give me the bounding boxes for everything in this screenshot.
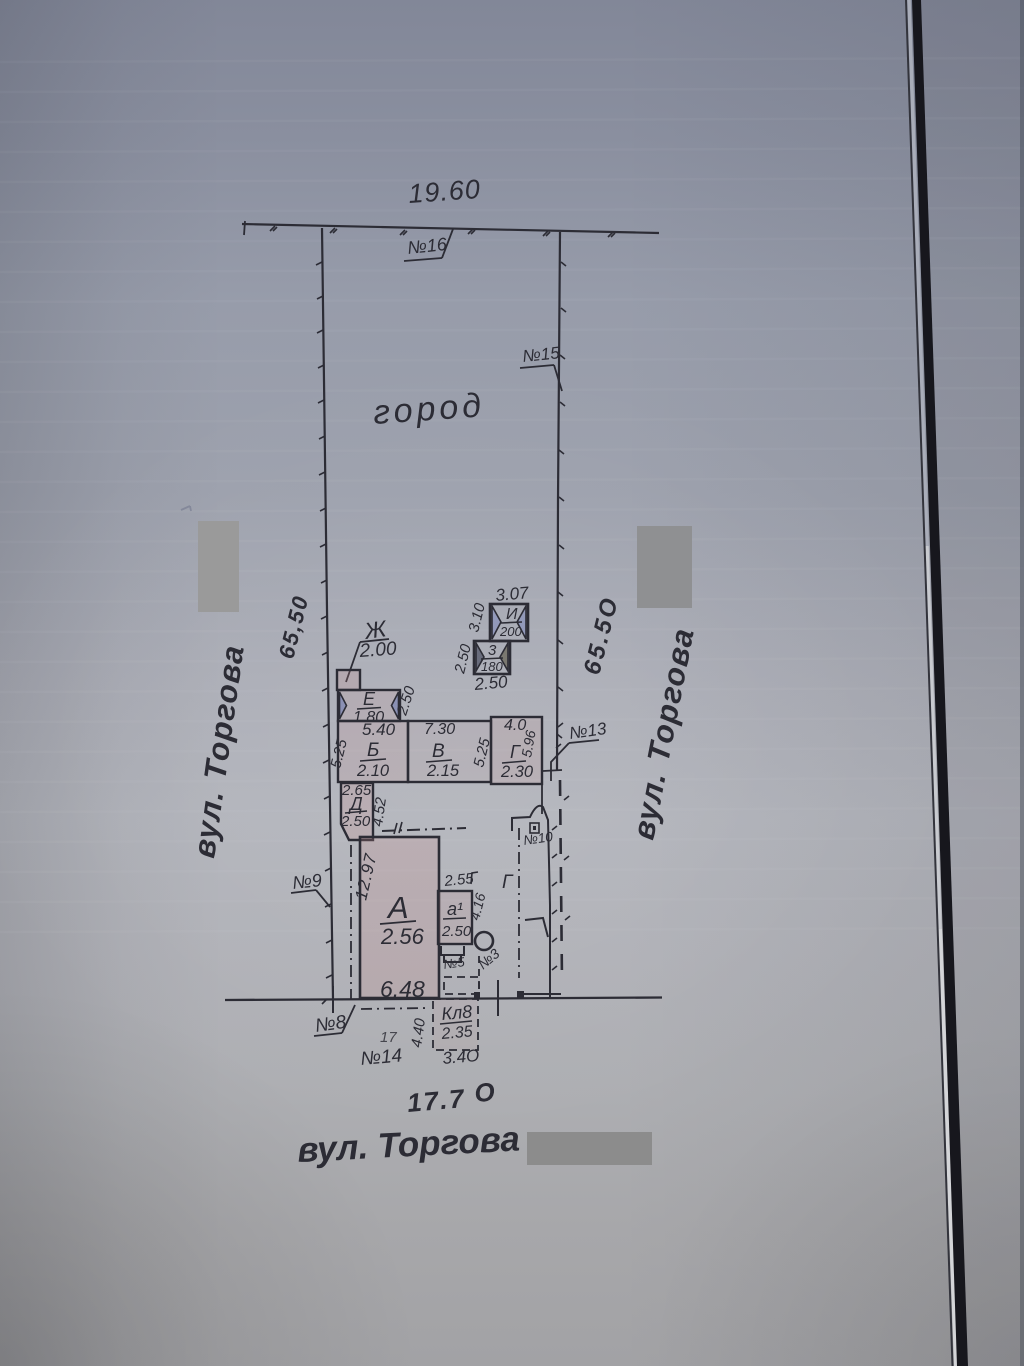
svg-text:2.10: 2.10 xyxy=(356,762,390,780)
svg-text:город: город xyxy=(372,386,486,432)
svg-text:№5: №5 xyxy=(442,954,466,972)
svg-text:2.55: 2.55 xyxy=(443,870,475,890)
svg-text:200: 200 xyxy=(499,624,522,639)
svg-text:2.56: 2.56 xyxy=(380,924,425,949)
svg-text:2.50: 2.50 xyxy=(393,684,419,719)
svg-text:7.30: 7.30 xyxy=(424,721,455,738)
svg-text:4.40: 4.40 xyxy=(408,1017,429,1049)
svg-text:№14: №14 xyxy=(360,1045,403,1070)
svg-text:Е: Е xyxy=(363,689,376,709)
svg-text:19.60: 19.60 xyxy=(407,174,481,209)
svg-text:5.40: 5.40 xyxy=(362,720,396,739)
svg-text:3: 3 xyxy=(488,642,497,659)
svg-text:2.15: 2.15 xyxy=(426,762,460,780)
svg-text:2.35: 2.35 xyxy=(440,1023,474,1043)
svg-text:№13: №13 xyxy=(568,719,608,743)
svg-text:2.30: 2.30 xyxy=(500,763,534,781)
svg-text:180: 180 xyxy=(481,659,503,674)
svg-text:2.50: 2.50 xyxy=(451,642,475,676)
svg-text:3.07: 3.07 xyxy=(495,583,530,605)
svg-text:вул. Торгова: вул. Торгова xyxy=(296,1119,520,1170)
svg-text:№15: №15 xyxy=(521,343,561,366)
svg-text:№16: №16 xyxy=(406,234,448,258)
svg-text:3.4О: 3.4О xyxy=(442,1046,480,1068)
svg-text:2.50: 2.50 xyxy=(441,923,472,940)
svg-text:65.5О: 65.5О xyxy=(579,593,625,678)
svg-text:65,50: 65,50 xyxy=(274,592,314,661)
svg-text:Г: Г xyxy=(502,872,514,893)
svg-text:И: И xyxy=(506,606,518,623)
svg-text:17.7 О: 17.7 О xyxy=(406,1076,499,1118)
svg-text:А: А xyxy=(386,890,409,925)
svg-text:В: В xyxy=(432,741,445,762)
svg-text:17: 17 xyxy=(380,1029,397,1046)
svg-text:2.50: 2.50 xyxy=(473,672,509,694)
svg-text:№9: №9 xyxy=(291,870,322,893)
svg-text:Б: Б xyxy=(367,740,379,761)
svg-text:а¹: а¹ xyxy=(447,899,463,919)
svg-text:4.52: 4.52 xyxy=(369,796,390,828)
svg-text:2.50: 2.50 xyxy=(340,813,371,830)
